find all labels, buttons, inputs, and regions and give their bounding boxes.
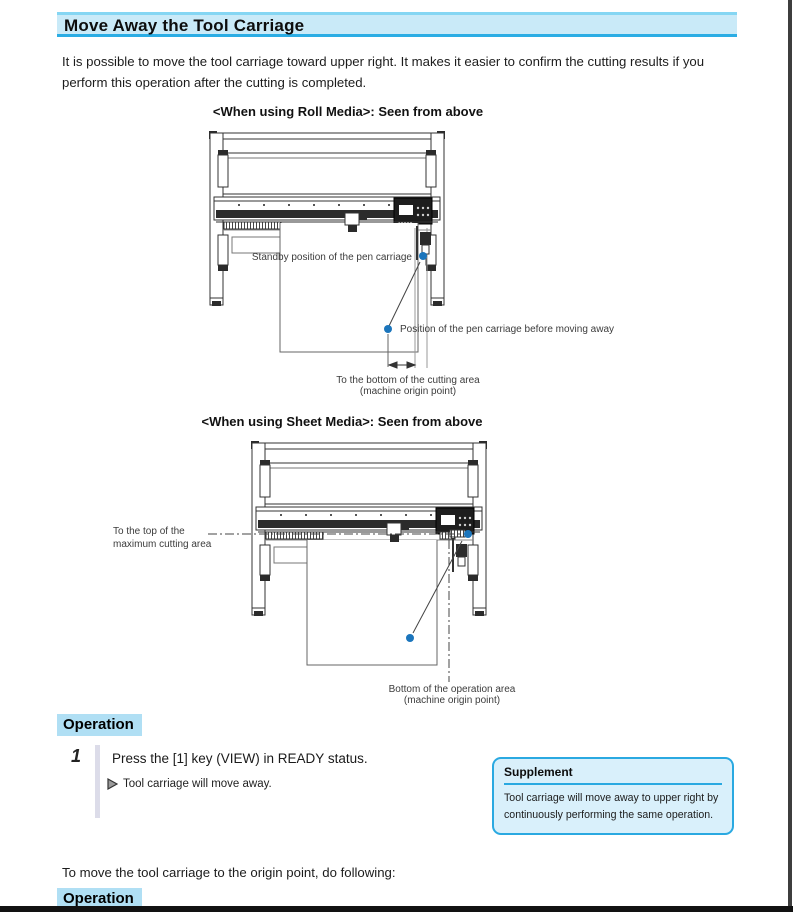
cutting-area-label-line1: To the bottom of the cutting area [336, 375, 480, 386]
page-edge-bottom [0, 906, 793, 912]
before-moving-label: Position of the pen carriage before movi… [400, 324, 614, 335]
distance-arrow [389, 362, 415, 368]
sheet-media-diagram: To the top of the maximum cutting area B… [90, 440, 650, 712]
operation-area-label-line2: (machine origin point) [404, 695, 500, 706]
operation-heading: Operation [57, 714, 142, 736]
page-title: Move Away the Tool Carriage [57, 15, 737, 36]
max-cutting-label-line1: To the top of the [113, 526, 185, 537]
cutting-area-label-line2: (machine origin point) [360, 386, 456, 397]
supplement-text: Tool carriage will move away to upper ri… [504, 790, 722, 824]
result-triangle-icon [107, 778, 118, 790]
section-title-bar: Move Away the Tool Carriage [57, 12, 737, 37]
sheet-media-diagram-title: <When using Sheet Media>: Seen from abov… [172, 414, 512, 429]
supplement-heading: Supplement [504, 765, 722, 779]
closing-paragraph: To move the tool carriage to the origin … [62, 865, 662, 880]
page-edge-right [788, 0, 792, 912]
intro-paragraph: It is possible to move the tool carriage… [62, 51, 738, 93]
step-instruction: Press the [1] key (VIEW) in READY status… [112, 751, 368, 766]
supplement-rule [504, 783, 722, 785]
sheet-media-sheet [307, 540, 437, 665]
roll-media-diagram-title: <When using Roll Media>: Seen from above [178, 104, 518, 119]
tool-carriage-icon [387, 520, 409, 542]
carriage-position-dot [406, 634, 414, 642]
carriage-position-dot [384, 325, 392, 333]
step-divider-bar [95, 745, 100, 818]
carriage-rail-dot [464, 530, 472, 538]
roll-media-sheet [280, 223, 418, 352]
step-result: Tool carriage will move away. [107, 778, 272, 790]
step-number: 1 [71, 746, 81, 767]
standby-position-dot [419, 252, 427, 260]
step-result-text: Tool carriage will move away. [123, 778, 272, 790]
roll-media-diagram: Standby position of the pen carriage Pos… [180, 125, 640, 400]
operation-area-label-line1: Bottom of the operation area [389, 684, 516, 695]
supplement-box: Supplement Tool carriage will move away … [492, 757, 734, 835]
standby-label: Standby position of the pen carriage [252, 252, 413, 263]
max-cutting-label-line2: maximum cutting area [113, 539, 212, 550]
